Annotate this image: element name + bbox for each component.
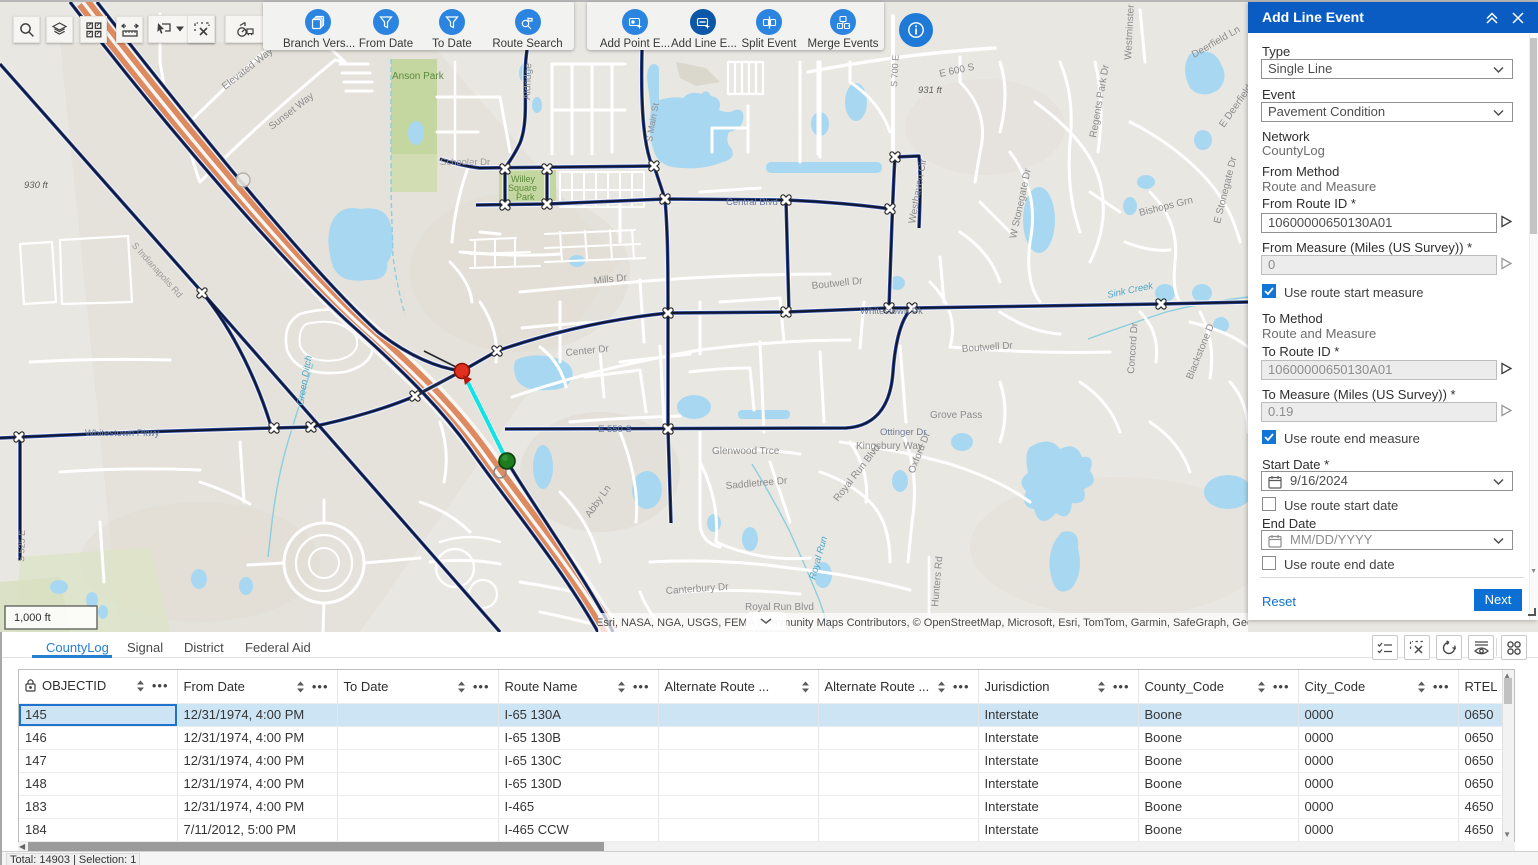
svg-text:mmunity Maps Contributors, © O: mmunity Maps Contributors, © OpenStreetM… xyxy=(772,617,1291,629)
svg-text:Kingsbury Way: Kingsbury Way xyxy=(856,441,923,452)
svg-text:Whitestown Pkwy: Whitestown Pkwy xyxy=(85,428,160,439)
svg-text:Central Blvd: Central Blvd xyxy=(726,197,778,208)
svg-text:Ottinger Dr: Ottinger Dr xyxy=(880,427,926,438)
svg-text:S 525 E: S 525 E xyxy=(16,530,27,562)
svg-text:Aldridge: Aldridge xyxy=(522,63,534,100)
svg-text:930 ft: 930 ft xyxy=(24,180,48,191)
svg-text:Royal Run Blvd: Royal Run Blvd xyxy=(745,602,814,613)
svg-text:Schooler Dr: Schooler Dr xyxy=(440,157,490,168)
svg-text:Anson Park: Anson Park xyxy=(392,71,445,82)
svg-text:S 700 E: S 700 E xyxy=(889,55,901,88)
svg-text:Esri, NASA, NGA, USGS, FEMA |: Esri, NASA, NGA, USGS, FEMA | xyxy=(596,617,760,629)
svg-text:Park: Park xyxy=(516,192,535,202)
svg-text:Whitestown Pk: Whitestown Pk xyxy=(860,306,923,317)
svg-text:E 550 S: E 550 S xyxy=(598,424,632,435)
svg-text:Glenwood Trce: Glenwood Trce xyxy=(712,446,780,457)
svg-text:1,000 ft: 1,000 ft xyxy=(14,612,51,624)
svg-text:931 ft: 931 ft xyxy=(918,85,942,96)
svg-text:Grove Pass: Grove Pass xyxy=(930,410,982,421)
